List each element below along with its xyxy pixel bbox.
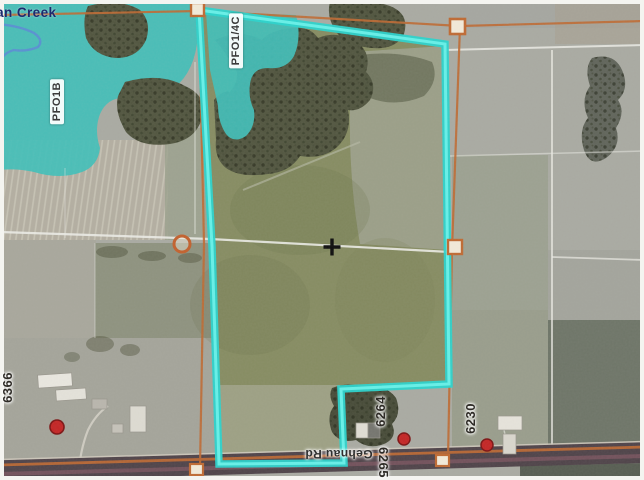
aerial-basemap (0, 0, 644, 480)
aerial-parcel-map[interactable]: ian Creek PFO1B PFO1/4C 6366 6264 6230 6… (0, 0, 644, 480)
photo-grain (0, 0, 644, 480)
